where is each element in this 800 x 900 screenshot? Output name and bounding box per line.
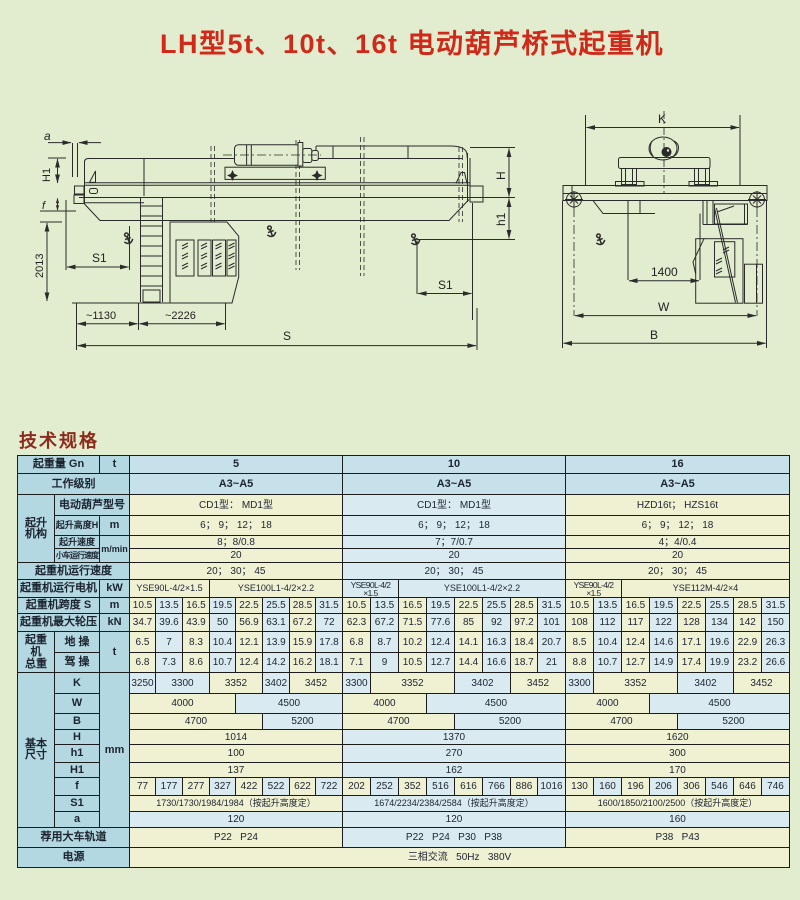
- svg-text:2013: 2013: [34, 254, 46, 278]
- svg-text:H: H: [494, 171, 508, 180]
- svg-text:S1: S1: [438, 278, 453, 292]
- svg-text:a: a: [44, 129, 51, 143]
- svg-text:S: S: [283, 329, 291, 343]
- svg-text:S1: S1: [92, 251, 107, 265]
- svg-text:B: B: [650, 328, 658, 342]
- svg-text:f: f: [42, 200, 46, 212]
- svg-text:K: K: [658, 112, 666, 126]
- svg-text:~1130: ~1130: [86, 310, 116, 322]
- svg-text:W: W: [658, 300, 670, 314]
- svg-text:H1: H1: [41, 168, 53, 182]
- svg-text:~2226: ~2226: [165, 310, 196, 322]
- svg-text:h1: h1: [494, 212, 508, 226]
- svg-text:1400: 1400: [651, 265, 678, 279]
